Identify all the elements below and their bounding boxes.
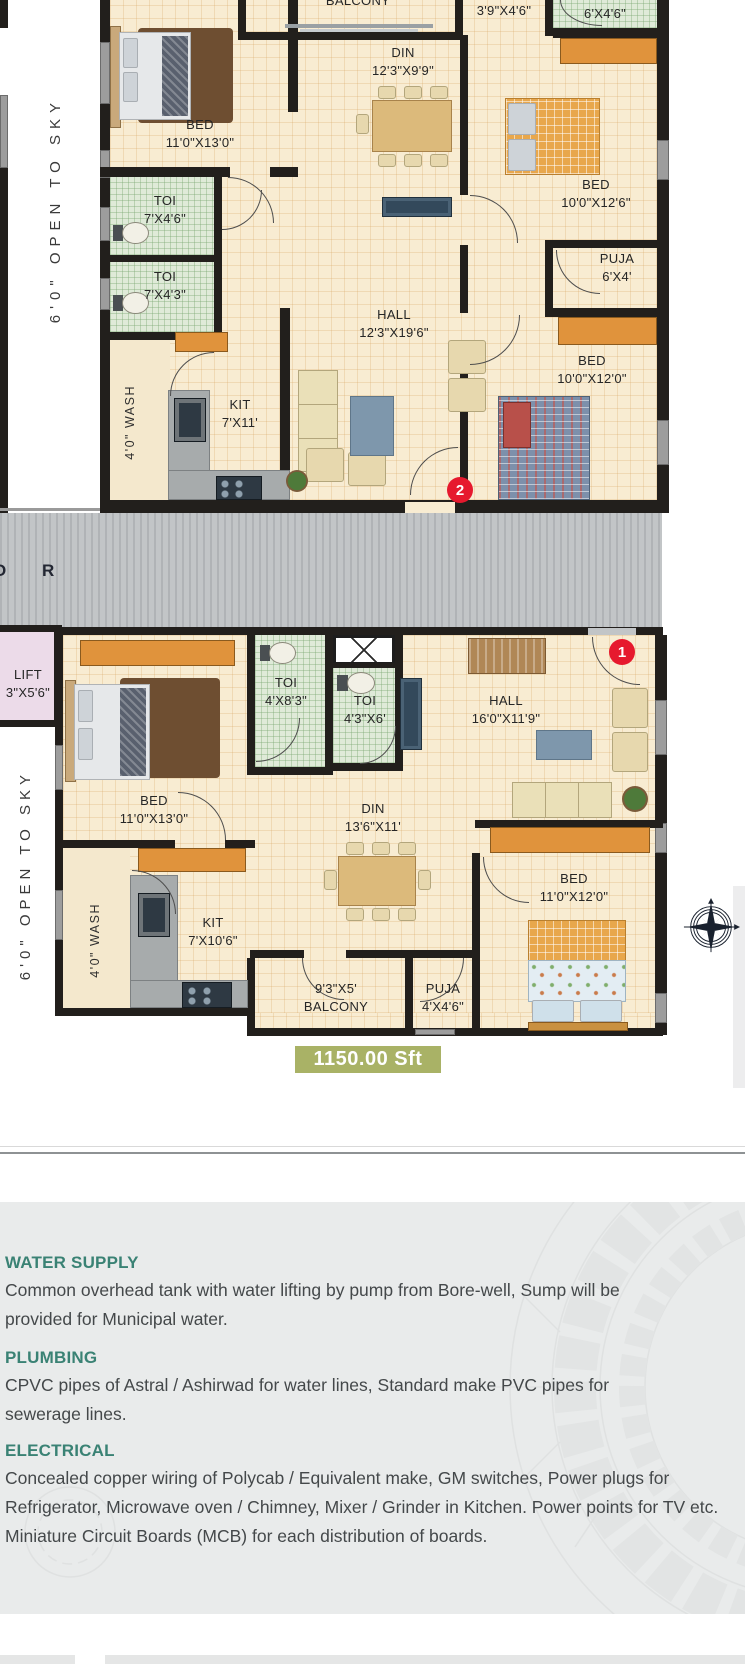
armchair-icon bbox=[348, 452, 386, 486]
plant-icon bbox=[286, 470, 308, 492]
room-name: KIT bbox=[196, 396, 284, 414]
pillow bbox=[508, 103, 536, 135]
wall bbox=[0, 625, 62, 632]
room-dim: 10'0"X12'0" bbox=[534, 370, 650, 388]
room-name: BED bbox=[538, 176, 654, 194]
room-label-puja-u2: PUJA 6'X4' bbox=[572, 250, 662, 287]
wall bbox=[270, 167, 298, 177]
pillow bbox=[123, 38, 138, 68]
wall bbox=[460, 245, 468, 313]
corridor-top-line bbox=[0, 508, 100, 511]
section-heading-plumbing: PLUMBING bbox=[5, 1348, 97, 1368]
wall bbox=[0, 0, 8, 28]
room-dim: 4'3"X6' bbox=[330, 710, 400, 728]
window-segment bbox=[655, 700, 667, 755]
tv-unit-icon bbox=[382, 197, 452, 217]
room-label-bed-left-u1: BED 11'0"X13'0" bbox=[94, 792, 214, 829]
wall bbox=[55, 1008, 255, 1016]
toilet-icon bbox=[260, 642, 296, 664]
wall bbox=[247, 958, 255, 1036]
window-segment bbox=[657, 420, 669, 465]
chair-icon bbox=[398, 842, 416, 855]
pillow bbox=[78, 690, 93, 722]
room-label-toi2-u1: TOI 4'3"X6' bbox=[330, 692, 400, 729]
room-name: PUJA bbox=[410, 980, 476, 998]
blanket bbox=[162, 36, 188, 116]
wardrobe-block bbox=[558, 317, 657, 345]
corridor-letter-r: R bbox=[42, 561, 54, 581]
wall bbox=[545, 240, 657, 248]
wall bbox=[100, 167, 230, 177]
chair-icon bbox=[324, 870, 337, 890]
wall bbox=[250, 950, 304, 958]
chair-icon bbox=[378, 86, 396, 99]
chair-icon bbox=[430, 154, 448, 167]
room-label-dress-u2: 3'9"X4'6" bbox=[458, 2, 550, 20]
diwan-icon bbox=[468, 638, 546, 674]
chair-icon bbox=[372, 842, 390, 855]
armchair-icon bbox=[306, 448, 344, 482]
duct-x-box bbox=[333, 635, 395, 665]
floor-plan-page: 6'0" OPEN TO SKY bbox=[0, 0, 745, 1664]
room-label-toi2-u2: TOI 7'X4'3" bbox=[120, 268, 210, 305]
room-label-toi1-u2: TOI 7'X4'6" bbox=[120, 192, 210, 229]
pillow bbox=[532, 1000, 574, 1022]
chair-icon bbox=[430, 86, 448, 99]
bed-frame bbox=[528, 1022, 628, 1031]
wall bbox=[0, 627, 663, 635]
room-dim: 6'X4'6" bbox=[558, 5, 652, 23]
room-label-hall-u2: HALL 12'3"X19'6" bbox=[334, 306, 454, 343]
room-label-bed-tr-u2: BED 10'0"X12'6" bbox=[538, 176, 654, 213]
room-label-balcony-u1: 9'3"X5' BALCONY bbox=[276, 980, 396, 1017]
wall bbox=[0, 168, 8, 513]
room-dim: 4'X4'6" bbox=[410, 998, 476, 1016]
room-name: BED bbox=[140, 116, 260, 134]
stove-icon bbox=[182, 982, 232, 1008]
armchair-icon bbox=[612, 688, 648, 728]
wardrobe-block bbox=[560, 38, 657, 64]
room-dim: 7'X10'6" bbox=[170, 932, 256, 950]
room-name: TOI bbox=[120, 192, 210, 210]
wall bbox=[325, 763, 403, 771]
wardrobe-block bbox=[175, 332, 228, 352]
sofa-icon bbox=[512, 782, 612, 818]
open-to-sky-upper-text: 6'0" OPEN TO SKY bbox=[47, 97, 64, 323]
room-label-din-u2: DIN 12'3"X9'9" bbox=[344, 44, 462, 81]
door-gap bbox=[588, 628, 636, 635]
room-name: PUJA bbox=[572, 250, 662, 268]
bed-icon bbox=[528, 960, 626, 1002]
room-label-toi-top-u2: TOI 6'X4'6" bbox=[558, 0, 652, 24]
wall bbox=[247, 767, 333, 775]
room-dim: 7'X4'6" bbox=[120, 210, 210, 228]
room-name: BED bbox=[514, 870, 634, 888]
room-dim: 10'0"X12'6" bbox=[538, 194, 654, 212]
unit1-marker-number: 1 bbox=[618, 644, 626, 661]
wash-text: 4'0" WASH bbox=[123, 385, 137, 460]
room-name: DIN bbox=[344, 44, 462, 62]
room-dim: 4'X8'3" bbox=[248, 692, 324, 710]
room-label-bed-right-u1: BED 11'0"X12'0" bbox=[514, 870, 634, 907]
wall bbox=[412, 950, 474, 958]
pillow bbox=[580, 1000, 622, 1022]
dining-table-icon bbox=[338, 856, 416, 906]
wall bbox=[246, 32, 463, 40]
wall bbox=[545, 240, 553, 317]
room-name: DIN bbox=[314, 800, 432, 818]
window-segment bbox=[0, 95, 8, 168]
wardrobe-block bbox=[80, 640, 235, 666]
bed-icon bbox=[528, 920, 626, 962]
wash-text: 4'0" WASH bbox=[88, 903, 102, 978]
room-label-balcony-u2: BALCONY bbox=[288, 0, 428, 10]
window-segment bbox=[657, 140, 669, 180]
plant-icon bbox=[622, 786, 648, 812]
room-dim: 12'3"X9'9" bbox=[344, 62, 462, 80]
unit2-marker-number: 2 bbox=[456, 482, 464, 499]
chair-icon bbox=[418, 870, 431, 890]
wall bbox=[553, 28, 657, 38]
coffee-table-icon bbox=[536, 730, 592, 760]
room-name: KIT bbox=[170, 914, 256, 932]
corridor-letter-o: O bbox=[0, 561, 6, 581]
section-body-plumbing: CPVC pipes of Astral / Ashirwad for wate… bbox=[5, 1371, 685, 1429]
wall bbox=[100, 500, 669, 513]
divider-line bbox=[0, 1152, 745, 1154]
unit2-marker: 2 bbox=[447, 477, 473, 503]
room-name: HALL bbox=[334, 306, 454, 324]
room-dim: 9'3"X5' bbox=[276, 980, 396, 998]
chair-icon bbox=[378, 154, 396, 167]
open-to-sky-lower: 6'0" OPEN TO SKY bbox=[0, 725, 50, 1025]
room-name: TOI bbox=[120, 268, 210, 286]
room-name: HALL bbox=[446, 692, 566, 710]
room-label-puja-u1: PUJA 4'X4'6" bbox=[410, 980, 476, 1017]
window-segment bbox=[100, 42, 110, 104]
lift-label: LIFT 3"X5'6" bbox=[0, 666, 56, 703]
room-label-bed-left-u2: BED 11'0"X13'0" bbox=[140, 116, 260, 153]
room-label-hall-u1: HALL 16'0"X11'9" bbox=[446, 692, 566, 729]
specs-panel: WATER SUPPLY Common overhead tank with w… bbox=[0, 1202, 745, 1614]
chair-icon bbox=[404, 154, 422, 167]
dining-table-icon bbox=[372, 100, 452, 152]
room-label-wash-u1: 4'0" WASH bbox=[77, 880, 113, 1000]
stove-icon bbox=[216, 476, 262, 500]
wall bbox=[225, 840, 255, 848]
chair-icon bbox=[404, 86, 422, 99]
section-body-electrical: Concealed copper wiring of Polycab / Equ… bbox=[5, 1464, 720, 1551]
wall bbox=[346, 950, 412, 958]
room-label-kit-u1: KIT 7'X10'6" bbox=[170, 914, 256, 951]
room-label-toi1-u1: TOI 4'X8'3" bbox=[248, 674, 324, 711]
window-segment bbox=[655, 993, 667, 1023]
wall bbox=[55, 635, 63, 1015]
wardrobe-block bbox=[490, 827, 650, 853]
room-label-kit-u2: KIT 7'X11' bbox=[196, 396, 284, 433]
window-segment bbox=[100, 278, 110, 310]
room-name: BED bbox=[94, 792, 214, 810]
wall bbox=[214, 167, 222, 340]
toilet-icon bbox=[337, 672, 375, 694]
room-name: TOI bbox=[248, 674, 324, 692]
section-heading-electrical: ELECTRICAL bbox=[5, 1441, 115, 1461]
tv-unit-icon bbox=[400, 678, 422, 750]
room-dim: 11'0"X13'0" bbox=[140, 134, 260, 152]
room-label-wash-u2: 4'0" WASH bbox=[112, 360, 148, 485]
room-dim: 7'X4'3" bbox=[120, 286, 210, 304]
coffee-table-icon bbox=[350, 396, 394, 456]
compass-icon bbox=[682, 898, 740, 956]
window-segment bbox=[55, 890, 63, 940]
area-badge: 1150.00 Sft bbox=[295, 1046, 441, 1073]
divider-line bbox=[0, 1146, 745, 1147]
window-segment bbox=[415, 1029, 455, 1035]
chair-icon bbox=[356, 114, 369, 134]
room-name: BALCONY bbox=[288, 0, 428, 10]
window-segment bbox=[100, 207, 110, 241]
wall bbox=[288, 0, 298, 112]
armchair-icon bbox=[448, 378, 486, 412]
room-name: BALCONY bbox=[276, 998, 396, 1016]
room-label-bed-br-u2: BED 10'0"X12'0" bbox=[534, 352, 650, 389]
chair-icon bbox=[346, 908, 364, 921]
unit1-marker: 1 bbox=[609, 639, 635, 665]
corridor bbox=[0, 513, 662, 627]
armchair-icon bbox=[612, 732, 648, 772]
room-dim: 6'X4' bbox=[572, 268, 662, 286]
wardrobe-block bbox=[138, 848, 246, 872]
wall bbox=[63, 840, 175, 848]
wall bbox=[553, 308, 657, 317]
pillow bbox=[78, 728, 93, 760]
room-dim: 16'0"X11'9" bbox=[446, 710, 566, 728]
window-segment bbox=[55, 745, 63, 790]
bottom-block-right bbox=[105, 1655, 745, 1664]
section-heading-water-supply: WATER SUPPLY bbox=[5, 1253, 139, 1273]
pillow bbox=[503, 402, 531, 448]
chair-icon bbox=[398, 908, 416, 921]
chair-icon bbox=[372, 908, 390, 921]
room-dim: 11'0"X13'0" bbox=[94, 810, 214, 828]
open-to-sky-upper: 6'0" OPEN TO SKY bbox=[20, 20, 90, 400]
section-body-water-supply: Common overhead tank with water lifting … bbox=[5, 1276, 685, 1334]
wall bbox=[238, 0, 246, 40]
open-to-sky-lower-text: 6'0" OPEN TO SKY bbox=[17, 770, 34, 980]
room-label-din-u1: DIN 13'6"X11' bbox=[314, 800, 432, 837]
pillow bbox=[508, 139, 536, 171]
balcony-railing bbox=[300, 29, 418, 32]
chair-icon bbox=[346, 842, 364, 855]
room-dim: 11'0"X12'0" bbox=[514, 888, 634, 906]
wall bbox=[110, 255, 214, 262]
bottom-block-left bbox=[0, 1655, 75, 1664]
room-name: TOI bbox=[330, 692, 400, 710]
room-name: LIFT bbox=[0, 666, 56, 684]
room-dim: 13'6"X11' bbox=[314, 818, 432, 836]
blanket bbox=[120, 688, 146, 776]
room-dim: 3"X5'6" bbox=[0, 684, 56, 702]
door-gap bbox=[405, 502, 455, 513]
room-dim: 7'X11' bbox=[196, 414, 284, 432]
pillow bbox=[123, 72, 138, 102]
room-dim: 12'3"X19'6" bbox=[334, 324, 454, 342]
balcony-railing bbox=[285, 24, 433, 28]
room-name: BED bbox=[534, 352, 650, 370]
room-dim: 3'9"X4'6" bbox=[458, 2, 550, 20]
